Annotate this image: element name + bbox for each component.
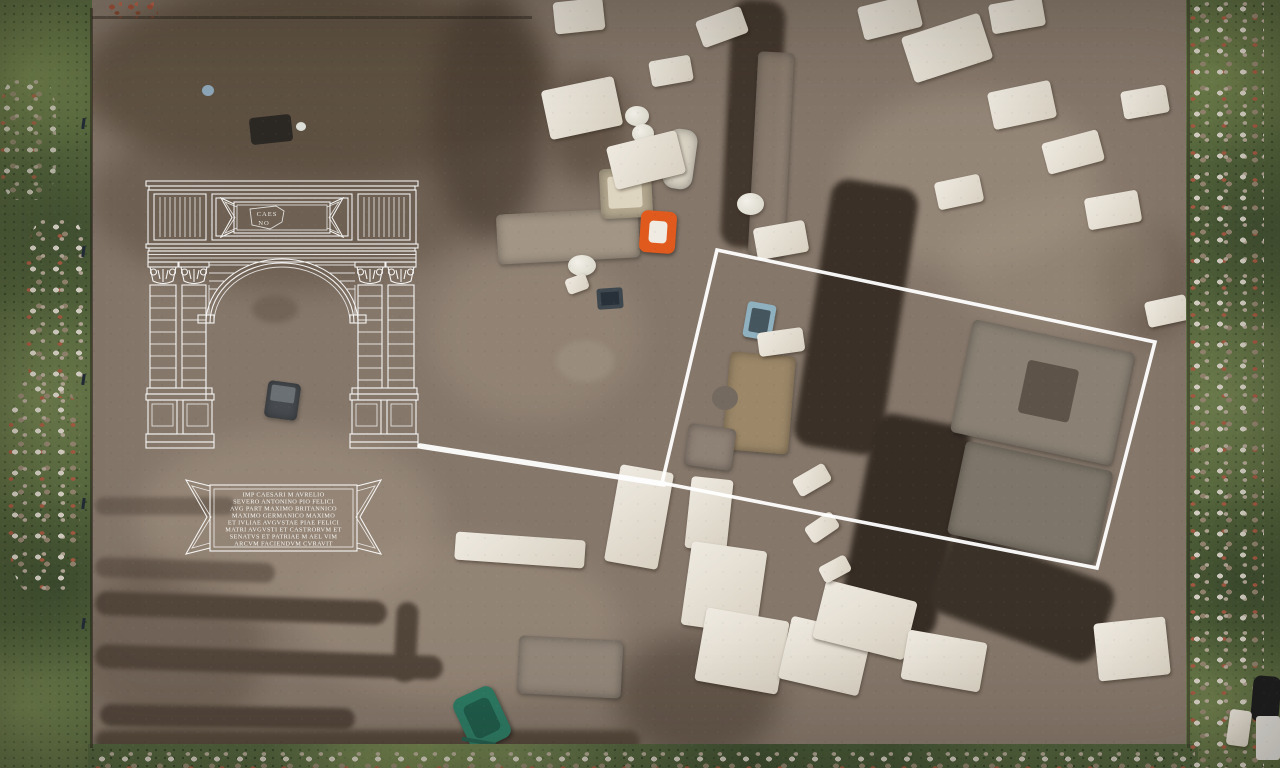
- inscription-line: SEVERO ANTONINO PIO FELICI: [233, 499, 334, 506]
- inscription-line: MATRI AVGVSTI ET CASTRORVM ET: [225, 527, 341, 534]
- connector-line: [420, 446, 664, 484]
- inscription-line: AVG PART MAXIMO BRITANNICO: [230, 506, 337, 513]
- inscription-tabula: IMP CAESARI M AVRELIO SEVERO ANTONINO PI…: [186, 480, 381, 554]
- arch-reconstruction-drawing: CAES NO: [146, 181, 418, 448]
- annotation-overlay: CAES NO: [0, 0, 1280, 768]
- excavation-aerial-photo: CAES NO: [0, 0, 1280, 768]
- arch-fragment-text-line1: CAES: [257, 211, 278, 218]
- highlight-rectangle: [662, 250, 1155, 568]
- inscription-line: IMP CAESARI M AVRELIO: [242, 492, 324, 499]
- inscription-line: ARCVM FACIENDVM CVRAVIT: [234, 541, 332, 548]
- arch-fragment-text-line2: NO: [258, 220, 270, 227]
- inscription-line: SENATVS ET PATRIAE M AEL VIM: [230, 534, 338, 541]
- inscription-line: MAXIMO GERMANICO MAXIMO: [232, 513, 335, 520]
- inscription-line: ET IVLIAE AVGVSTAE PIAE FELICI: [228, 520, 339, 527]
